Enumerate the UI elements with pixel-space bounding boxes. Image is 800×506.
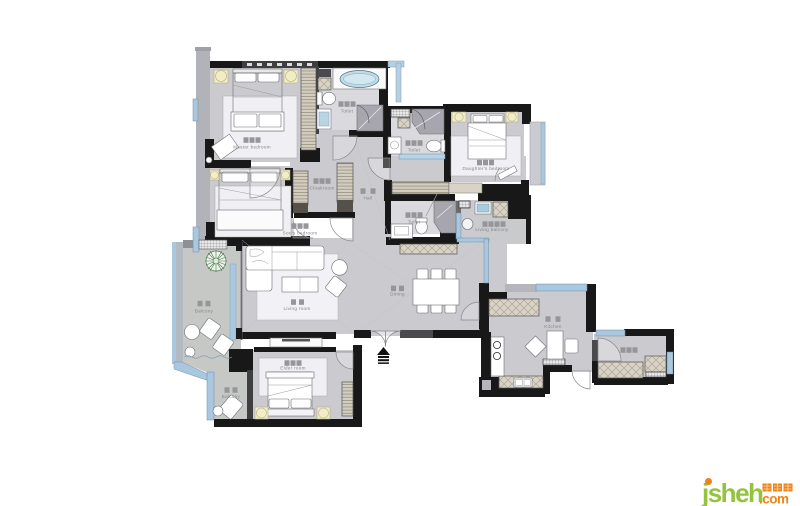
svg-text:Balcony: Balcony bbox=[222, 394, 241, 399]
svg-text:Living balcony: Living balcony bbox=[475, 227, 509, 232]
svg-text:Toilet: Toilet bbox=[408, 220, 421, 225]
svg-text:Toilet: Toilet bbox=[341, 109, 354, 114]
svg-text:Elder room: Elder room bbox=[280, 366, 305, 371]
svg-text:Living room: Living room bbox=[283, 306, 310, 311]
svg-text:Daughter's bedroom: Daughter's bedroom bbox=[463, 166, 510, 171]
svg-text:Dining: Dining bbox=[390, 292, 405, 297]
svg-text:Hall: Hall bbox=[363, 196, 372, 201]
svg-text:Toilet: Toilet bbox=[408, 148, 421, 153]
svg-text:Master bedroom: Master bedroom bbox=[233, 145, 271, 150]
svg-text:Balcony: Balcony bbox=[195, 309, 214, 314]
svg-text:.com: .com bbox=[759, 492, 789, 506]
svg-text:Son's bedroom: Son's bedroom bbox=[283, 231, 318, 236]
svg-text:Cloakroom: Cloakroom bbox=[310, 186, 335, 191]
svg-text:Kitchen: Kitchen bbox=[544, 324, 562, 329]
